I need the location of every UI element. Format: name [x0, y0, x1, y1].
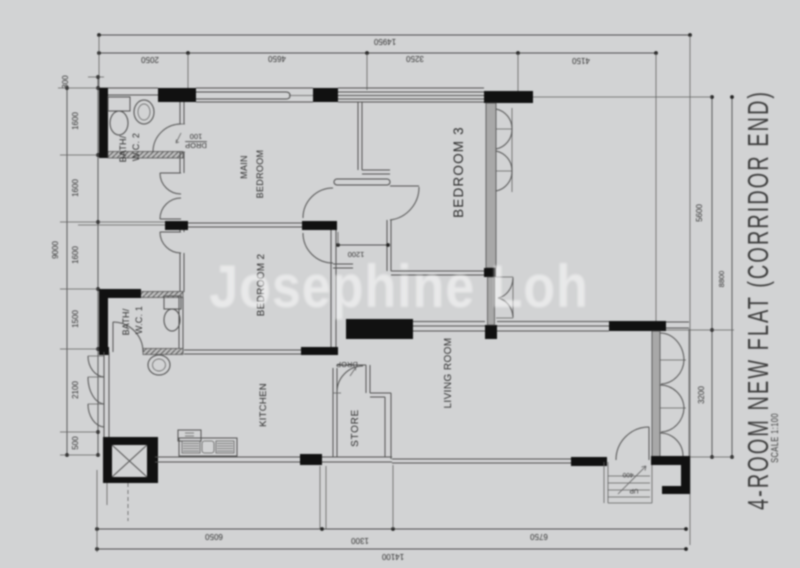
- svg-text:1300: 1300: [351, 536, 369, 545]
- svg-text:14950: 14950: [373, 37, 396, 46]
- svg-text:1600: 1600: [71, 112, 80, 130]
- svg-text:SCALE 1:100: SCALE 1:100: [769, 413, 780, 463]
- svg-text:BEDROOM 3: BEDROOM 3: [451, 126, 466, 218]
- svg-text:W.C. 1: W.C. 1: [134, 306, 144, 334]
- svg-text:BEDROOM: BEDROOM: [255, 150, 265, 199]
- svg-text:3250: 3250: [406, 54, 424, 63]
- svg-text:8800: 8800: [717, 271, 726, 288]
- svg-text:1600: 1600: [71, 179, 80, 197]
- svg-text:DROP: DROP: [336, 360, 358, 369]
- svg-text:4650: 4650: [268, 54, 286, 63]
- svg-text:MAIN: MAIN: [239, 155, 249, 179]
- svg-text:5600: 5600: [695, 204, 704, 222]
- svg-text:14100: 14100: [381, 552, 404, 561]
- svg-text:6750: 6750: [530, 532, 548, 541]
- svg-text:2100: 2100: [71, 381, 80, 399]
- svg-text:9000: 9000: [51, 241, 60, 259]
- svg-text:1500: 1500: [71, 310, 80, 328]
- svg-text:2050: 2050: [141, 55, 159, 64]
- svg-text:6050: 6050: [205, 532, 223, 541]
- svg-text:UP: UP: [629, 487, 638, 494]
- svg-text:400: 400: [622, 471, 633, 478]
- svg-text:4150: 4150: [572, 56, 590, 65]
- svg-text:1600: 1600: [71, 246, 80, 264]
- svg-text:3200: 3200: [697, 386, 706, 404]
- svg-text:Josephine Loh: Josephine Loh: [209, 253, 589, 320]
- svg-text:100: 100: [190, 132, 203, 141]
- svg-text:LIVING ROOM: LIVING ROOM: [443, 337, 454, 408]
- svg-text:DROP: DROP: [185, 141, 207, 150]
- svg-text:300: 300: [61, 75, 70, 89]
- svg-text:KITCHEN: KITCHEN: [258, 383, 269, 427]
- svg-text:BATH/: BATH/: [121, 308, 131, 335]
- svg-text:W.C. 2: W.C. 2: [131, 133, 141, 161]
- svg-text:STORE: STORE: [350, 409, 361, 447]
- svg-text:BATH/: BATH/: [118, 135, 128, 162]
- svg-text:500: 500: [71, 436, 80, 450]
